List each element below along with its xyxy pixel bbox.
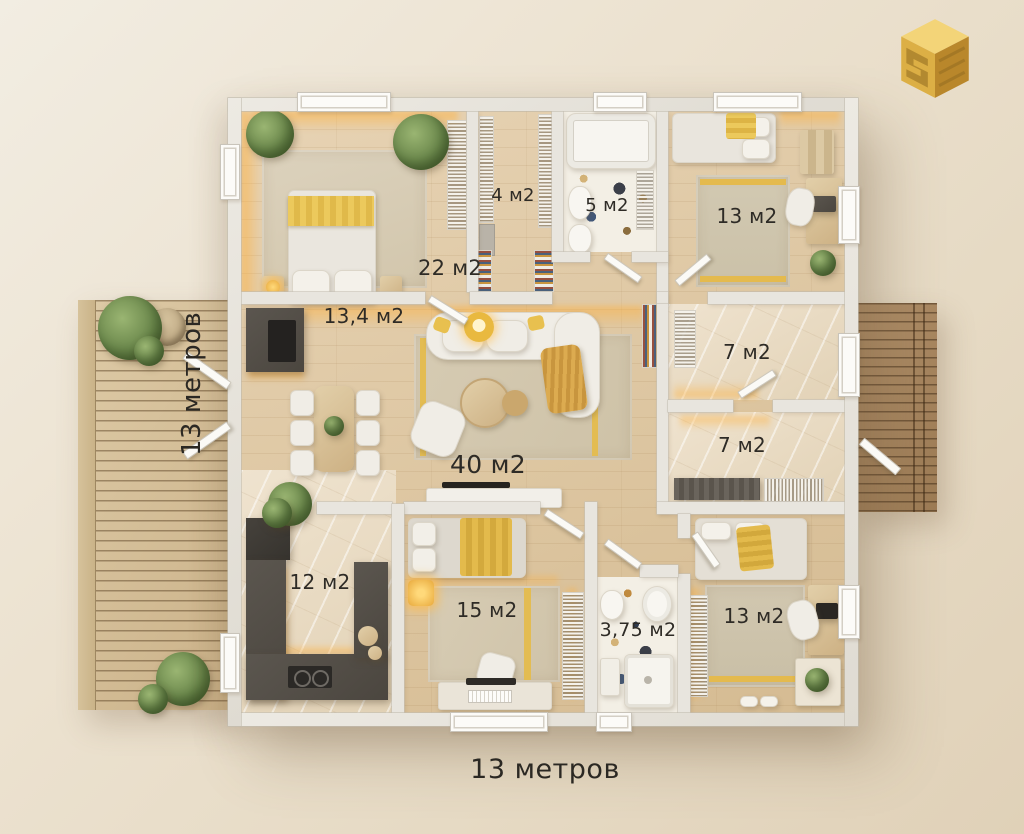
stool	[358, 626, 378, 646]
plant-icon	[810, 250, 836, 276]
area-label-wardrobe: 4 м2	[482, 184, 544, 206]
cooktop-burner	[294, 670, 311, 687]
sink	[642, 586, 672, 622]
interior-wall	[470, 292, 552, 304]
pendant-lamp	[464, 312, 494, 342]
plant-icon	[324, 416, 344, 436]
deck-edge-board	[78, 300, 96, 710]
area-label-living-room: 40 м2	[450, 450, 526, 478]
plant-icon	[138, 684, 168, 714]
interior-wall	[552, 252, 590, 262]
deck-plank-seam	[923, 303, 925, 512]
rug-stripe	[700, 179, 786, 185]
side-table	[502, 390, 528, 416]
interior-wall	[657, 292, 668, 304]
plant-icon	[262, 498, 292, 528]
bed-pillow	[412, 548, 436, 572]
interior-wall	[657, 502, 845, 514]
interior-wall	[657, 304, 668, 512]
dining-chair	[356, 420, 380, 446]
plant-icon	[393, 114, 449, 170]
rug-stripe	[524, 588, 531, 680]
rug	[696, 175, 790, 287]
window	[220, 633, 240, 693]
interior-wall	[708, 292, 845, 304]
plant-icon	[246, 110, 294, 158]
interior-wall	[640, 565, 678, 577]
rug	[705, 585, 805, 687]
bookshelf	[534, 250, 554, 292]
window	[838, 585, 860, 639]
interior-wall	[773, 400, 845, 412]
bath-mat	[600, 658, 620, 696]
bed-blanket	[288, 196, 374, 226]
wardrobe-cabinet	[800, 130, 834, 174]
window	[713, 92, 802, 112]
bathroom-shelf	[636, 170, 654, 230]
brand-logo-icon	[896, 16, 974, 104]
laptop	[812, 196, 836, 212]
interior-wall	[632, 252, 668, 262]
wardrobe-rack	[538, 114, 553, 228]
toilet	[600, 590, 624, 620]
plant-icon	[134, 336, 164, 366]
wardrobe-rack	[447, 120, 467, 230]
deck-right	[855, 303, 937, 512]
dining-chair	[290, 450, 314, 476]
tv	[268, 320, 296, 362]
dining-chair	[290, 390, 314, 416]
tv	[442, 482, 510, 488]
interior-wall	[585, 502, 597, 713]
bed-pillow	[701, 522, 731, 540]
slippers	[740, 696, 758, 707]
monitor	[816, 603, 838, 619]
bathtub	[566, 113, 656, 169]
deck-plank-seam	[913, 303, 915, 512]
cooktop-burner	[312, 670, 329, 687]
bed-pillow	[412, 522, 436, 546]
rug-stripe	[700, 276, 786, 282]
area-label-kitchen-dining: 13,4 м2	[320, 304, 408, 328]
wardrobe-rack	[674, 310, 696, 368]
wardrobe-rack	[562, 592, 584, 700]
interior-wall	[668, 400, 733, 412]
wardrobe-rack	[690, 595, 708, 697]
interior-wall	[678, 514, 690, 538]
monitor	[466, 678, 516, 685]
rug-stripe	[709, 676, 801, 682]
window	[596, 712, 632, 732]
window	[838, 186, 860, 244]
area-label-bedroom-bottom-right: 13 м2	[720, 604, 788, 628]
dining-chair	[356, 450, 380, 476]
interior-wall	[657, 111, 668, 304]
shower-drain	[644, 676, 652, 684]
dimension-label-vertical: 13 метров	[169, 298, 215, 470]
window	[593, 92, 647, 112]
interior-wall	[241, 292, 425, 304]
dining-chair	[290, 420, 314, 446]
dimension-label-horizontal: 13 метров	[395, 754, 695, 785]
wardrobe-unit	[674, 478, 760, 500]
wardrobe-shelf	[764, 478, 824, 502]
interior-wall	[404, 502, 540, 514]
bidet	[568, 224, 592, 254]
bed-blanket	[726, 113, 756, 139]
window	[838, 333, 860, 397]
bed-blanket	[460, 518, 512, 576]
stool	[368, 646, 382, 660]
area-label-bathroom-top: 5 м2	[579, 194, 635, 216]
interior-wall	[317, 502, 392, 514]
window	[297, 92, 391, 112]
interior-wall	[392, 504, 404, 713]
bedside-lamp	[408, 580, 434, 606]
area-label-bathroom-bottom: 3,75 м2	[598, 618, 678, 642]
floor-plan: 22 м2 4 м2 5 м2 13 м2 13,4 м2 40 м2 7 м2…	[0, 0, 1024, 834]
area-label-storage-lower: 7 м2	[710, 434, 774, 456]
window	[220, 144, 240, 200]
area-label-bedroom-bottom-middle: 15 м2	[455, 598, 519, 622]
window	[450, 712, 548, 732]
area-label-kitchen: 12 м2	[288, 570, 352, 594]
bed-blanket	[736, 524, 774, 571]
keyboard	[468, 690, 512, 703]
slippers	[760, 696, 778, 707]
wardrobe-rack	[479, 116, 494, 223]
house: 22 м2 4 м2 5 м2 13 м2 13,4 м2 40 м2 7 м2…	[228, 98, 858, 726]
interior-wall	[678, 574, 690, 713]
area-label-bedroom-top-right: 13 м2	[712, 205, 782, 227]
dining-chair	[356, 390, 380, 416]
bed-pillow	[742, 139, 770, 159]
area-label-storage-upper: 7 м2	[715, 341, 779, 363]
interior-wall	[552, 111, 563, 252]
plant-icon	[805, 668, 829, 692]
area-label-bedroom-top-left: 22 м2	[410, 256, 490, 280]
